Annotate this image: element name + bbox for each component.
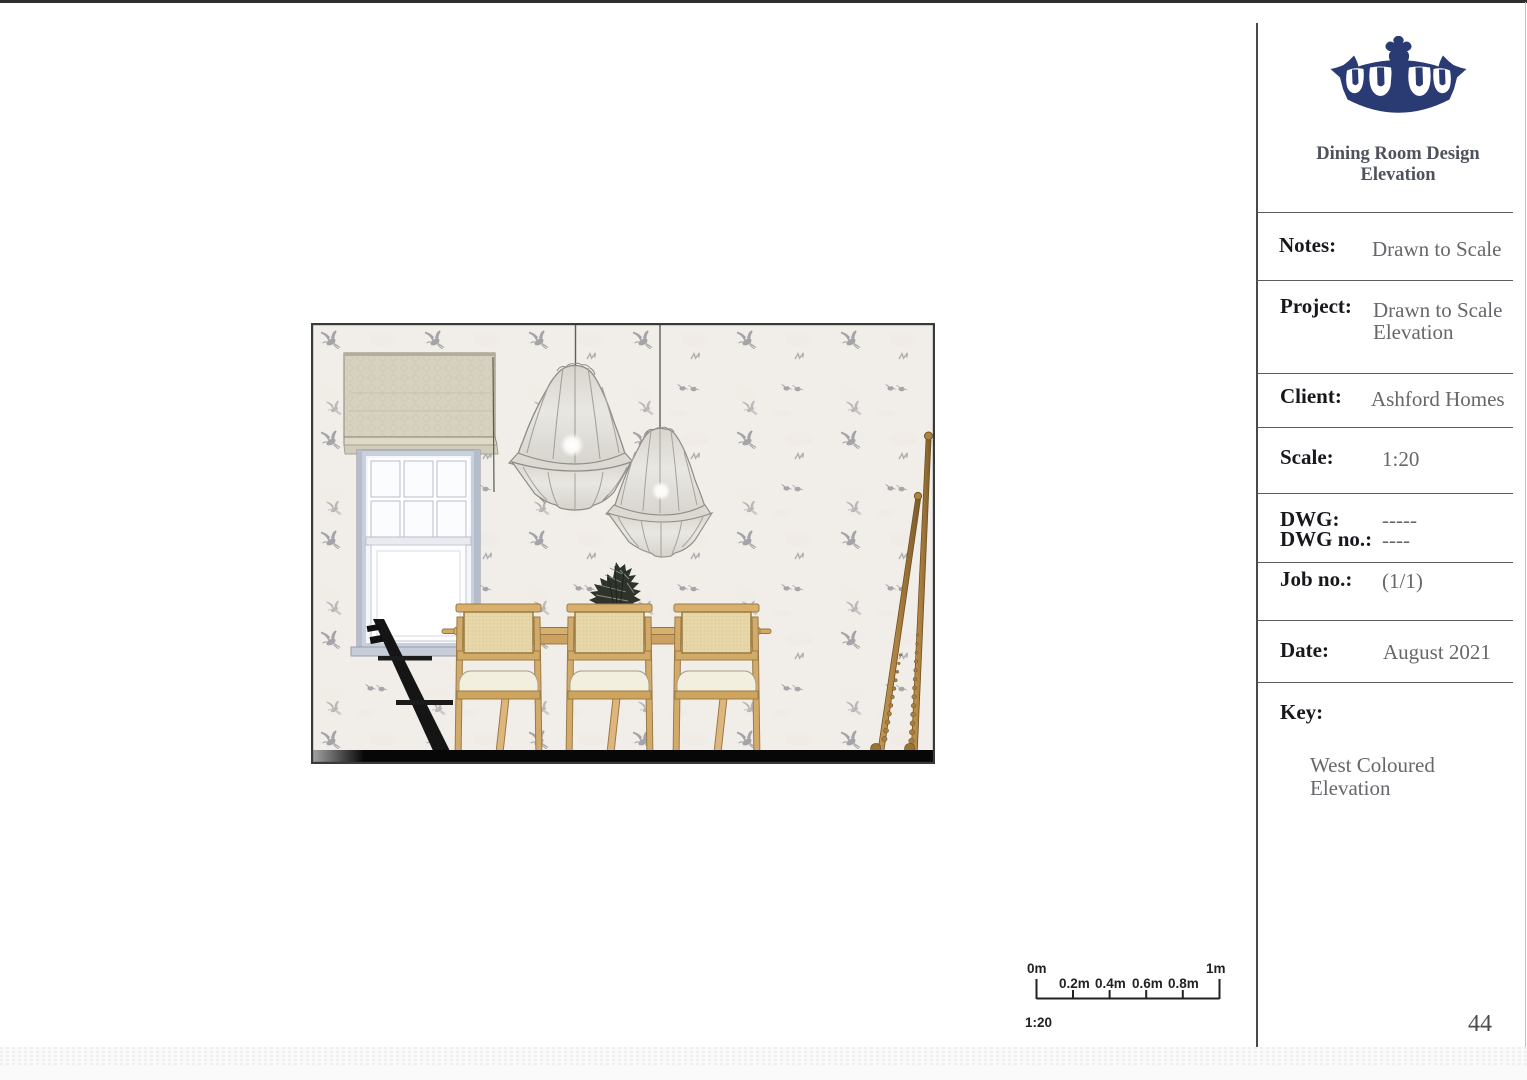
svg-text:0.2m: 0.2m [1059, 976, 1090, 991]
svg-text:0.6m: 0.6m [1132, 976, 1163, 991]
svg-text:0.8m: 0.8m [1168, 976, 1199, 991]
svg-text:1:20: 1:20 [1025, 1015, 1052, 1030]
svg-text:1m: 1m [1206, 961, 1226, 976]
svg-text:0.4m: 0.4m [1095, 976, 1126, 991]
svg-text:0m: 0m [1027, 961, 1047, 976]
